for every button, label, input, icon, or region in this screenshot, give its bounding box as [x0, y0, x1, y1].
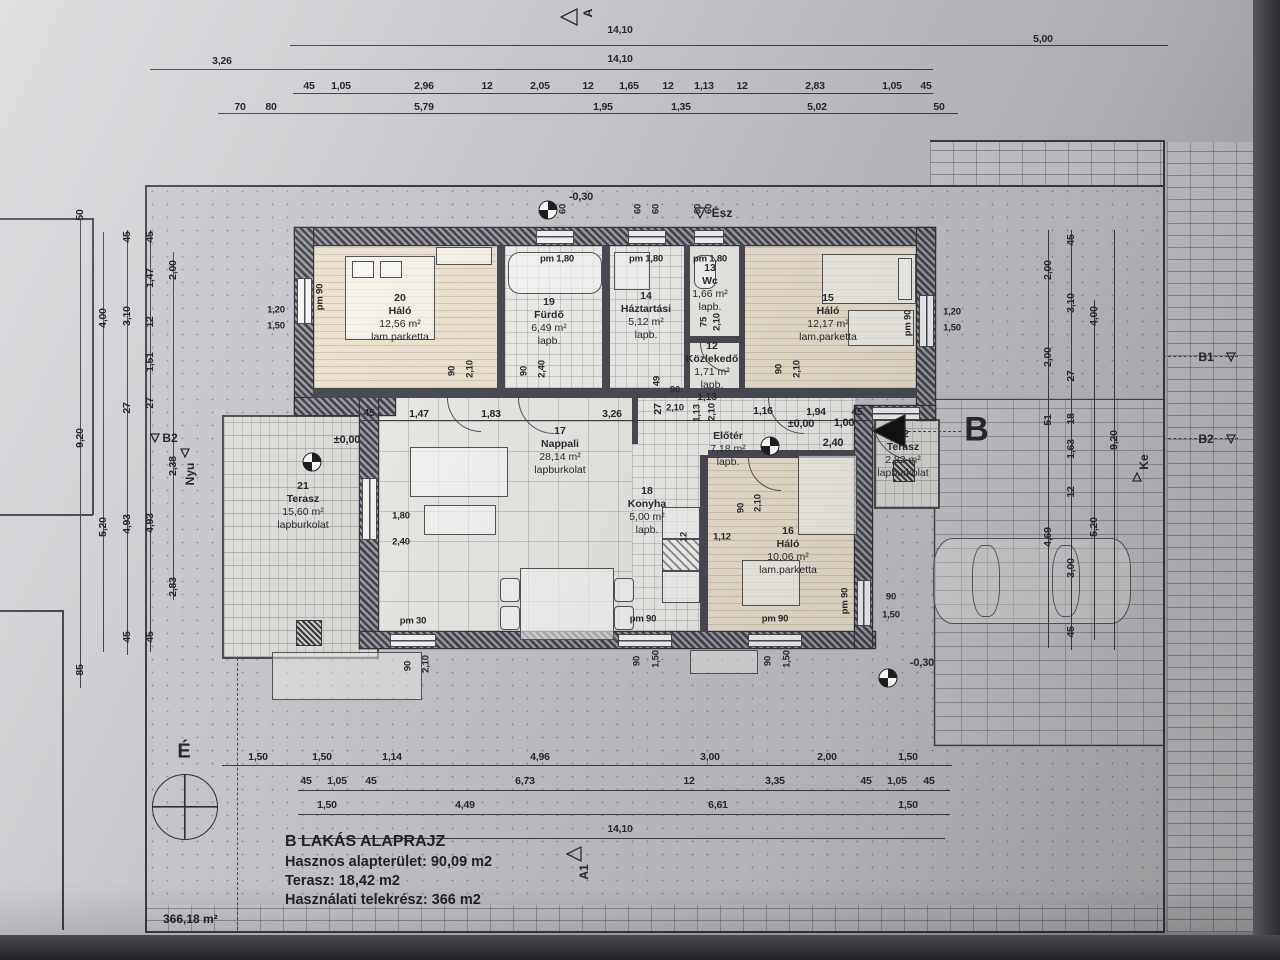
opening-size-label: 1,12 — [713, 532, 731, 543]
dimension-label: 12 — [736, 80, 747, 92]
dimension-label: 1,50 — [248, 751, 268, 763]
section-marker-label: B2 — [162, 431, 177, 445]
dimension-label: 2,83 — [805, 80, 825, 92]
room-area: 7,18 m² — [688, 443, 768, 456]
entry-step — [272, 652, 422, 700]
pillow — [380, 261, 402, 278]
dimension-label: 45 — [365, 775, 376, 787]
plot-area-label: 366,18 m² — [163, 912, 218, 926]
partition-room16-west — [700, 455, 708, 632]
opening-size-label: 90 — [736, 503, 747, 513]
room-area: 6,49 m² — [514, 322, 584, 335]
opening-size-label: 1,20 — [267, 305, 285, 316]
dim-line — [298, 790, 950, 791]
opening-size-label: 90 — [403, 661, 414, 671]
dimension-label: 45 — [920, 80, 931, 92]
dimension-label: 1,47 — [409, 408, 429, 420]
dimension-label: 12 — [582, 80, 593, 92]
plot-boundary-right — [1163, 140, 1165, 933]
opening-size-label: 49 — [652, 376, 663, 386]
dimension-label: 45 — [144, 631, 156, 642]
dimension-label: 2,05 — [530, 80, 550, 92]
dimension-label: 2,96 — [414, 80, 434, 92]
room-label-előtér: Előtér7,18 m²lapb. — [688, 430, 768, 469]
dimension-label: 1,05 — [887, 775, 907, 787]
dimension-label: 3,10 — [1065, 293, 1077, 313]
dimension-label: 27 — [1065, 370, 1077, 381]
partition — [497, 245, 505, 388]
window — [297, 278, 312, 324]
room-area: 1,66 m² — [685, 288, 735, 301]
dimension-label: 45 — [303, 80, 314, 92]
dimension-label: 4,93 — [144, 513, 156, 533]
dimension-label: 12 — [1065, 486, 1077, 497]
room-number: 20 — [340, 292, 460, 305]
opening-size-label: 60 — [558, 204, 569, 214]
pavement-top-right — [930, 140, 1163, 187]
room-floor: lapb. — [612, 524, 682, 537]
dimension-label: 3,26 — [212, 55, 232, 67]
north-triangle-icon — [694, 207, 706, 219]
opening-size-label: 2,10 — [421, 655, 432, 673]
opening-size-label: pm 90 — [630, 614, 656, 625]
neighbor-wall — [92, 218, 94, 515]
dimension-label: 45 — [1065, 626, 1077, 637]
dimension-label: 2,00 — [1042, 260, 1054, 280]
dimension-label: 45 — [1065, 234, 1077, 245]
dimension-label: 70 — [234, 101, 245, 113]
b1-triangle-icon — [1226, 352, 1236, 362]
dining-table — [520, 568, 614, 640]
room-label-háztartási: 14Háztartási5,12 m²lapb. — [606, 290, 686, 342]
bed — [798, 455, 857, 535]
compass-icon — [152, 774, 218, 840]
coffee-table — [424, 505, 496, 535]
dimension-label: 12 — [683, 775, 694, 787]
window — [536, 230, 574, 244]
b2-triangle-icon — [1226, 434, 1236, 444]
dimension-label: 5,00 — [1033, 33, 1053, 45]
room-number: 14 — [606, 290, 686, 303]
terrace-door — [362, 478, 377, 540]
photo-edge-right — [1253, 0, 1280, 960]
opening-size-label: 1,20 — [943, 307, 961, 318]
room-name: Közlekedő — [667, 353, 757, 366]
room-area: 10,06 m² — [733, 551, 843, 564]
window — [390, 634, 436, 647]
room-name: Konyha — [612, 498, 682, 511]
dimension-label: 1,50 — [317, 799, 337, 811]
dimension-label: 14,10 — [607, 823, 632, 835]
room-floor: lam.parketta — [768, 331, 888, 344]
dimension-label: 45 — [121, 231, 133, 242]
dimension-label: 85 — [74, 664, 86, 675]
dimension-label: 27 — [652, 403, 664, 414]
opening-size-label: 60 — [651, 204, 662, 214]
partition-kitchen — [632, 398, 638, 444]
window — [628, 230, 666, 244]
axis-a1-triangle-icon — [566, 846, 582, 862]
dim-line — [127, 230, 128, 655]
dimension-label: 5,79 — [414, 101, 434, 113]
chair — [614, 578, 634, 602]
section-marker-label: Ke — [1137, 454, 1151, 469]
room-area: 5,12 m² — [606, 316, 686, 329]
opening-size-label: pm 1,80 — [540, 254, 574, 265]
level-label: ±0,00 — [788, 418, 814, 430]
opening-size-label: 1,50 — [882, 610, 900, 621]
plan-title: B LAKÁS ALAPRAJZ — [285, 833, 492, 851]
dimension-label: 14,10 — [607, 53, 632, 65]
opening-size-label: 2,10 — [465, 360, 476, 378]
dimension-label: 1,50 — [312, 751, 332, 763]
level-label: ±0,00 — [334, 434, 360, 446]
opening-size-label: 2,10 — [707, 403, 718, 421]
room-name: Előtér — [688, 430, 768, 443]
dimension-label: 45 — [144, 231, 156, 242]
section-marker-label: B — [964, 411, 990, 450]
east-triangle-icon — [1132, 472, 1142, 482]
section-marker-label: Ész — [712, 206, 733, 220]
dim-line — [298, 814, 950, 815]
room-name: Háló — [733, 538, 843, 551]
opening-size-label: 2,10 — [792, 360, 803, 378]
opening-size-label: 90 — [519, 366, 530, 376]
pillow — [898, 258, 912, 300]
room-label-konyha: 18Konyha5,00 m²lapb. — [612, 485, 682, 537]
dimension-label: 6,61 — [708, 799, 728, 811]
room-name: Háló — [340, 305, 460, 318]
opening-size-label: 90 — [886, 592, 896, 603]
room-area: 12,56 m² — [340, 318, 460, 331]
dimension-label: 2,83 — [167, 577, 179, 597]
dimension-label: 45 — [121, 631, 133, 642]
compass-north-label: É — [177, 741, 190, 764]
kitchen-sink — [662, 539, 700, 571]
dimension-label: 1,50 — [898, 751, 918, 763]
dimension-label: 1,63 — [1065, 439, 1077, 459]
dimension-label: 4,93 — [121, 514, 133, 534]
dimension-label: 1,51 — [144, 352, 156, 372]
neighbor-wall — [0, 610, 63, 612]
drain-symbol — [296, 620, 322, 646]
wardrobe — [436, 247, 492, 265]
dimension-label: 1,13 — [697, 391, 717, 403]
room-area: 12,17 m² — [768, 318, 888, 331]
opening-size-label: 2,10 — [712, 313, 723, 331]
opening-size-label: 2,10 — [753, 494, 764, 512]
dimension-label: 4,00 — [97, 308, 109, 328]
opening-size-label: 2,40 — [392, 537, 410, 548]
dimension-label: 12 — [662, 80, 673, 92]
dimension-label: 4,96 — [530, 751, 550, 763]
axis-a-triangle-icon — [560, 8, 578, 26]
room-area: 15,60 m² — [248, 506, 358, 519]
dimension-label: 1,16 — [753, 405, 773, 417]
plot-boundary-left — [145, 185, 147, 933]
dim-line — [80, 218, 81, 688]
opening-size-label: pm 30 — [400, 616, 426, 627]
dimension-label: 4,69 — [1042, 527, 1054, 547]
opening-size-label: pm 1,80 — [629, 254, 663, 265]
dimension-label: 1,50 — [898, 799, 918, 811]
room-floor: lapburkolat — [500, 464, 620, 477]
opening-size-label: 90 — [632, 656, 643, 666]
dimension-label: 1,47 — [144, 268, 156, 288]
room-number: 15 — [768, 292, 888, 305]
dimension-label: 6,73 — [515, 775, 535, 787]
dimension-label: 12 — [144, 316, 156, 327]
dim-line — [290, 45, 1168, 46]
room-name: Wc — [685, 275, 735, 288]
room-number: 21 — [248, 480, 358, 493]
room-area: 1,71 m² — [667, 366, 757, 379]
window — [857, 580, 871, 626]
property-dashed-line — [237, 658, 238, 930]
dimension-label: 27 — [144, 397, 156, 408]
wall-terrace-north — [295, 398, 395, 415]
opening-size-label: pm 90 — [840, 588, 851, 614]
dimension-label: 5,20 — [97, 517, 109, 537]
room-number: 19 — [514, 296, 584, 309]
photo-edge-bottom — [0, 935, 1280, 960]
terrace-area: Terasz: 18,42 m2 — [285, 873, 492, 889]
room-floor: lam.parketta — [733, 564, 843, 577]
dimension-label: 3,35 — [765, 775, 785, 787]
dimension-label: 45 — [363, 407, 374, 419]
opening-size-label: 1,50 — [782, 650, 793, 668]
dimension-label: 12 — [481, 80, 492, 92]
dimension-label: 1,94 — [806, 406, 826, 418]
level-label: 1,00 — [834, 417, 855, 429]
opening-size-label: 90 — [447, 366, 458, 376]
level-label: -0,30 — [910, 657, 934, 669]
dimension-label: 9,20 — [1108, 430, 1120, 450]
car — [933, 538, 1131, 624]
dimension-label: 50 — [74, 209, 86, 220]
entry-step — [690, 650, 758, 674]
opening-size-label: 1,50 — [943, 323, 961, 334]
opening-size-label: 2,40 — [537, 360, 548, 378]
dim-line — [293, 93, 933, 94]
room-name: Háló — [768, 305, 888, 318]
room-floor: lapburkolat — [248, 519, 358, 532]
lot-share: Használati telekrész: 366 m2 — [285, 892, 492, 908]
room-floor: lapb. — [667, 379, 757, 392]
pillow — [352, 261, 374, 278]
room-name: Terasz — [248, 493, 358, 506]
room-label-wc: 13Wc1,66 m²lapb. — [685, 262, 735, 314]
title-block: B LAKÁS ALAPRAJZ Hasznos alapterület: 90… — [285, 833, 492, 908]
dim-line — [173, 252, 174, 600]
dimension-label: 45 — [923, 775, 934, 787]
dimension-label: 1,65 — [619, 80, 639, 92]
dimension-label: 14,10 — [607, 24, 632, 36]
dimension-label: 1,05 — [882, 80, 902, 92]
dim-line — [103, 232, 104, 652]
dimension-label: 4,00 — [1088, 306, 1100, 326]
section-marker-label: A — [581, 9, 595, 18]
dimension-label: 3,10 — [121, 306, 133, 326]
room-label-fürdő: 19Fürdő6,49 m²lapb. — [514, 296, 584, 348]
opening-size-label: pm 90 — [903, 310, 914, 336]
room-name: Fürdő — [514, 309, 584, 322]
room-name: Nappali — [500, 438, 620, 451]
dimension-label: 1,95 — [593, 101, 613, 113]
survey-point-icon — [879, 669, 898, 688]
chair — [500, 578, 520, 602]
sofa — [410, 447, 508, 497]
section-b-arrow-icon — [872, 414, 906, 448]
plot-boundary-top — [145, 185, 1163, 187]
wall-north — [295, 228, 935, 245]
sidewalk-right — [1167, 142, 1253, 932]
dim-line — [150, 69, 933, 70]
section-marker-label: B1 — [1198, 350, 1213, 364]
dimension-label: 2,00 — [817, 751, 837, 763]
window — [919, 295, 934, 347]
floorplan-sheet: É B LAKÁS ALAPRAJZ Hasznos alapterület: … — [0, 0, 1280, 960]
section-marker-label: B2 — [1198, 432, 1213, 446]
dimension-label: 1,05 — [331, 80, 351, 92]
dim-line — [218, 113, 958, 114]
section-marker-label: A1 — [577, 864, 591, 879]
dimension-label: 18 — [1065, 413, 1077, 424]
neighbor-wall — [62, 610, 64, 930]
dim-line — [1048, 230, 1049, 648]
room-area: 2,82 m² — [858, 454, 948, 467]
room-floor: lapb. — [688, 456, 768, 469]
corridor-wall — [313, 388, 917, 398]
pavement-bottom — [145, 905, 1163, 933]
dimension-label: 5,02 — [807, 101, 827, 113]
room-floor: lam.parketta — [340, 331, 460, 344]
usable-area: Hasznos alapterület: 90,09 m2 — [285, 854, 492, 870]
dimension-label: 4,49 — [455, 799, 475, 811]
room-number: 16 — [733, 525, 843, 538]
dimension-label: 3,00 — [1065, 558, 1077, 578]
dimension-label: 1,83 — [481, 408, 501, 420]
level-label: -0,30 — [569, 191, 593, 203]
dimension-label: 1,14 — [382, 751, 402, 763]
room-label-terasz: 21Terasz15,60 m²lapburkolat — [248, 480, 358, 532]
window — [748, 634, 802, 647]
dim-line — [1094, 300, 1095, 640]
level-label: 2,40 — [823, 437, 844, 449]
dimension-label: 2,00 — [167, 260, 179, 280]
dimension-label: 1,13 — [694, 80, 714, 92]
chair — [500, 606, 520, 630]
room-floor: lapb. — [514, 335, 584, 348]
opening-size-label: pm 90 — [315, 284, 326, 310]
opening-size-label: 1,13 — [692, 404, 703, 422]
dimension-label: 9,20 — [74, 428, 86, 448]
section-marker-label: Nyu — [183, 463, 197, 486]
dimension-label: 1,35 — [671, 101, 691, 113]
opening-size-label: 75 — [699, 317, 710, 327]
dimension-label: 2,38 — [167, 456, 179, 476]
dim-line — [222, 765, 952, 766]
opening-size-label: 1,80 — [392, 511, 410, 522]
west-triangle-icon — [180, 448, 190, 458]
window — [618, 634, 672, 647]
room-label-háló: 15Háló12,17 m²lam.parketta — [768, 292, 888, 344]
stove — [662, 571, 700, 603]
opening-size-label: 1,50 — [267, 321, 285, 332]
plot-boundary-bottom — [145, 931, 1163, 933]
dimension-label: 2,00 — [1042, 347, 1054, 367]
room-floor: lapburkolat — [858, 467, 948, 480]
survey-point-icon — [303, 453, 322, 472]
room-label-háló: 20Háló12,56 m²lam.parketta — [340, 292, 460, 344]
dimension-label: 27 — [121, 402, 133, 413]
room-area: 28,14 m² — [500, 451, 620, 464]
room-number: 18 — [612, 485, 682, 498]
dimension-label: 50 — [933, 101, 944, 113]
boundary-top-right — [930, 140, 1163, 142]
room-number: 13 — [685, 262, 735, 275]
opening-size-label: 90 — [763, 656, 774, 666]
opening-size-label: 1,50 — [651, 650, 662, 668]
dimension-label: 3,00 — [700, 751, 720, 763]
b2-triangle-icon — [150, 433, 160, 443]
room-number: 12 — [667, 340, 757, 353]
dimension-label: 45 — [860, 775, 871, 787]
room-area: 5,00 m² — [612, 511, 682, 524]
survey-point-icon — [539, 201, 558, 220]
dimension-label: 80 — [265, 101, 276, 113]
room-name: Háztartási — [606, 303, 686, 316]
opening-size-label: pm 90 — [762, 614, 788, 625]
dimension-label: 5,20 — [1088, 517, 1100, 537]
opening-size-label: 60 — [633, 204, 644, 214]
survey-point-icon — [761, 437, 780, 456]
room-label-közlekedő: 12Közlekedő1,71 m²lapb. — [667, 340, 757, 392]
room-floor: lapb. — [685, 301, 735, 314]
dimension-label: 45 — [300, 775, 311, 787]
room-label-nappali: 17Nappali28,14 m²lapburkolat — [500, 425, 620, 477]
dimension-label: 1,05 — [327, 775, 347, 787]
opening-size-label: 90 — [774, 364, 785, 374]
room-number: 17 — [500, 425, 620, 438]
dimension-label: 51 — [1042, 414, 1054, 425]
window — [694, 230, 724, 244]
room-label-háló: 16Háló10,06 m²lam.parketta — [733, 525, 843, 577]
opening-size-label: 2,10 — [666, 403, 684, 414]
dimension-label: 3,26 — [602, 408, 622, 420]
